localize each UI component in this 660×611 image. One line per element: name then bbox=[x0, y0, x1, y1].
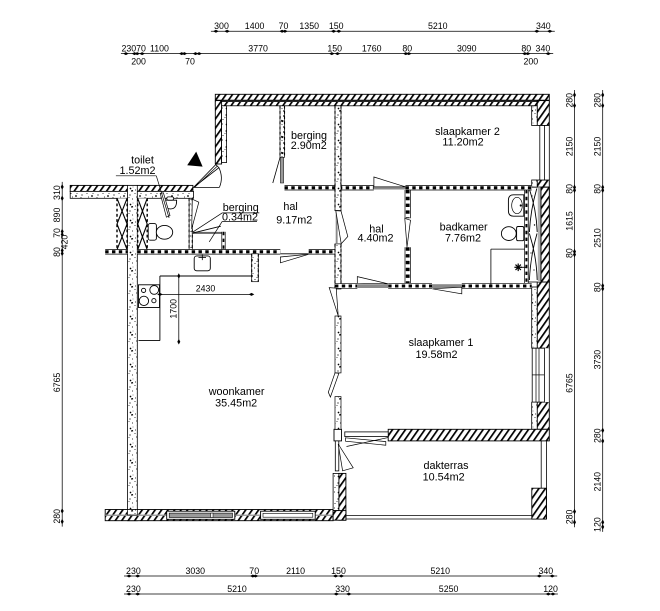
svg-text:35.45m2: 35.45m2 bbox=[215, 398, 257, 410]
svg-text:2110: 2110 bbox=[286, 566, 305, 576]
svg-text:7.76m2: 7.76m2 bbox=[445, 233, 481, 245]
svg-text:slaapkamer 1: slaapkamer 1 bbox=[409, 337, 474, 349]
svg-text:9.17m2: 9.17m2 bbox=[276, 214, 312, 226]
svg-text:1760: 1760 bbox=[362, 43, 382, 53]
svg-text:340: 340 bbox=[536, 43, 551, 53]
svg-text:19.58m2: 19.58m2 bbox=[415, 349, 457, 361]
svg-text:11.20m2: 11.20m2 bbox=[442, 137, 483, 149]
svg-text:310: 310 bbox=[52, 185, 62, 200]
svg-text:1350: 1350 bbox=[299, 21, 319, 31]
svg-text:200: 200 bbox=[523, 57, 538, 67]
svg-text:890: 890 bbox=[52, 208, 62, 223]
svg-text:80: 80 bbox=[564, 248, 574, 258]
svg-text:120: 120 bbox=[543, 584, 558, 594]
svg-text:1400: 1400 bbox=[245, 21, 265, 31]
svg-text:80: 80 bbox=[593, 282, 603, 292]
svg-text:70: 70 bbox=[279, 21, 289, 31]
svg-text:1100: 1100 bbox=[150, 43, 169, 53]
svg-text:5250: 5250 bbox=[439, 584, 459, 594]
svg-text:150: 150 bbox=[329, 21, 344, 31]
svg-text:5210: 5210 bbox=[428, 21, 448, 31]
svg-text:1700: 1700 bbox=[168, 299, 178, 319]
svg-text:80: 80 bbox=[402, 43, 412, 53]
svg-text:3730: 3730 bbox=[593, 350, 603, 370]
svg-text:2150: 2150 bbox=[564, 137, 574, 157]
svg-text:280: 280 bbox=[593, 428, 603, 443]
svg-text:70: 70 bbox=[136, 43, 146, 53]
svg-text:280: 280 bbox=[564, 509, 574, 524]
svg-text:5210: 5210 bbox=[431, 566, 451, 576]
svg-text:280: 280 bbox=[593, 93, 603, 108]
svg-text:70: 70 bbox=[249, 566, 259, 576]
svg-text:80: 80 bbox=[564, 184, 574, 194]
svg-text:hal: hal bbox=[283, 201, 297, 213]
svg-text:3030: 3030 bbox=[186, 566, 206, 576]
svg-text:4.40m2: 4.40m2 bbox=[357, 233, 393, 245]
svg-text:280: 280 bbox=[564, 93, 574, 108]
svg-text:120: 120 bbox=[593, 517, 603, 532]
svg-text:3770: 3770 bbox=[248, 43, 268, 53]
svg-text:230: 230 bbox=[126, 584, 141, 594]
svg-text:330: 330 bbox=[335, 584, 350, 594]
svg-text:150: 150 bbox=[331, 566, 346, 576]
svg-text:2140: 2140 bbox=[593, 472, 603, 492]
svg-text:2150: 2150 bbox=[593, 137, 603, 157]
svg-text:2510: 2510 bbox=[593, 228, 603, 248]
svg-text:6765: 6765 bbox=[564, 373, 574, 393]
svg-text:80: 80 bbox=[521, 43, 531, 53]
svg-text:3090: 3090 bbox=[457, 43, 477, 53]
svg-text:1.52m2: 1.52m2 bbox=[119, 165, 155, 177]
svg-text:2430: 2430 bbox=[196, 284, 216, 294]
svg-text:dakterras: dakterras bbox=[423, 460, 469, 472]
svg-text:1615: 1615 bbox=[564, 211, 574, 231]
svg-text:150: 150 bbox=[327, 43, 342, 53]
svg-text:420: 420 bbox=[60, 235, 70, 250]
svg-text:300: 300 bbox=[214, 21, 229, 31]
svg-text:70: 70 bbox=[185, 57, 195, 67]
svg-text:280: 280 bbox=[52, 509, 62, 524]
svg-text:5210: 5210 bbox=[227, 584, 247, 594]
svg-text:2.90m2: 2.90m2 bbox=[291, 140, 327, 152]
svg-text:6765: 6765 bbox=[52, 373, 62, 393]
svg-text:80: 80 bbox=[593, 184, 603, 194]
svg-text:200: 200 bbox=[131, 57, 146, 67]
svg-text:230: 230 bbox=[121, 43, 136, 53]
svg-text:340: 340 bbox=[538, 566, 553, 576]
svg-text:10.54m2: 10.54m2 bbox=[423, 471, 465, 483]
svg-text:230: 230 bbox=[126, 566, 141, 576]
svg-text:woonkamer: woonkamer bbox=[208, 386, 265, 398]
svg-text:340: 340 bbox=[536, 21, 551, 31]
